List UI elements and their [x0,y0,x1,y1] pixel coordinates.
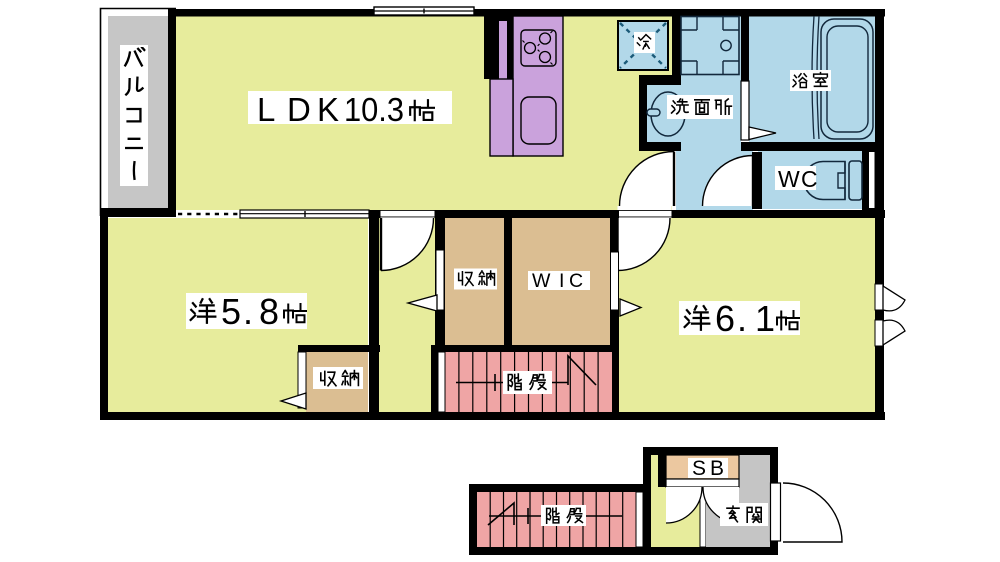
svg-text:WC: WC [778,166,818,192]
svg-text:6.1: 6.1 [715,298,775,339]
svg-text:5.8: 5.8 [221,291,279,332]
